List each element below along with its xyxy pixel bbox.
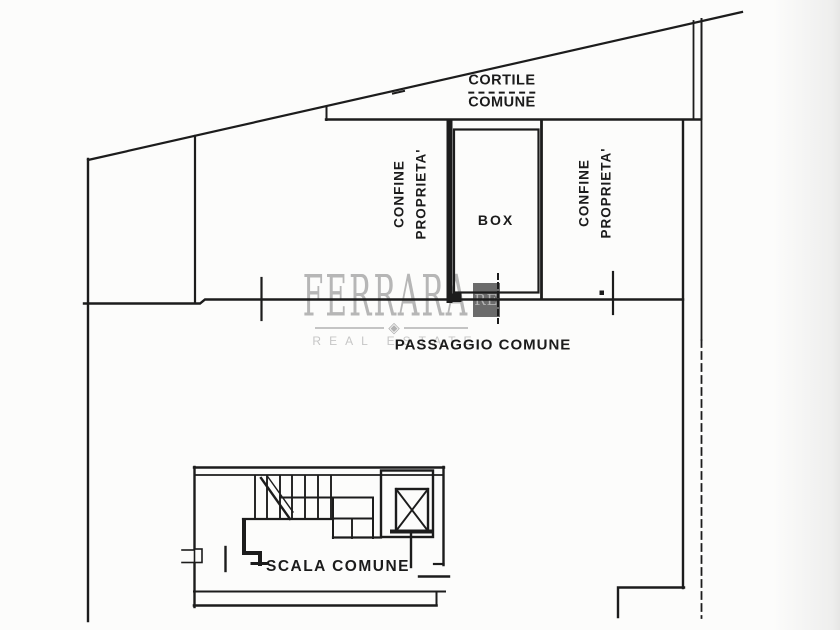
right-wall <box>618 119 702 618</box>
passage-boundary <box>84 272 683 323</box>
plan-linework <box>0 0 840 630</box>
courtyard-boundary <box>88 12 742 160</box>
elevator <box>381 471 433 568</box>
floor-plan-page: FERRARA RE ◈ REAL ESTATE <box>0 0 840 630</box>
garage-box <box>449 121 542 302</box>
